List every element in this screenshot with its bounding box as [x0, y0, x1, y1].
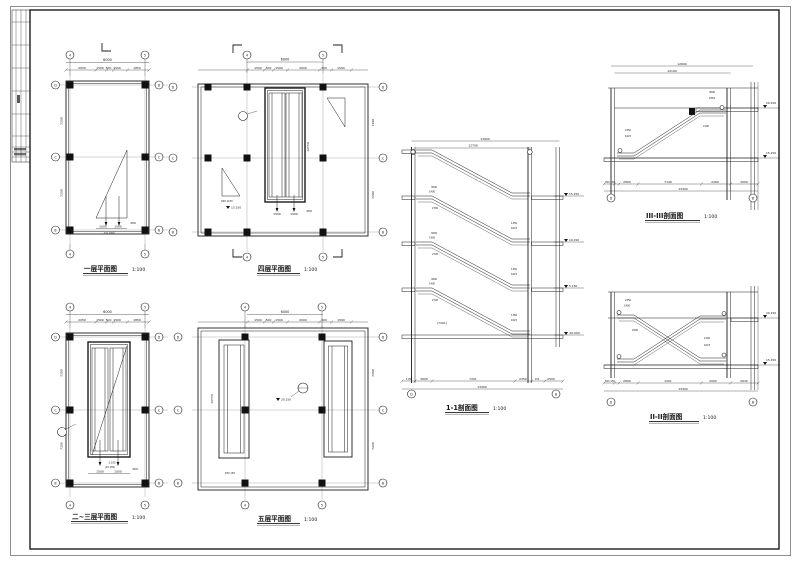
- dim-label: 3600: [709, 91, 716, 94]
- axis-bubble-label: B: [382, 230, 384, 234]
- dim-label: 650 150: [225, 472, 235, 475]
- elevation-label: 20.150: [766, 101, 776, 105]
- dim-label: 7200: [371, 442, 375, 450]
- dim-label: 2700: [432, 299, 439, 302]
- dim-label: 1500: [275, 66, 283, 70]
- axis-bubble-label: 4: [246, 255, 248, 259]
- level-label: 20.150: [281, 398, 291, 402]
- dim-label: 1400: [429, 191, 436, 194]
- dim-label: 1201: [664, 379, 672, 383]
- dim-label: 3000: [431, 278, 438, 281]
- dim-label: 1500: [254, 318, 262, 322]
- corner-stair: [222, 168, 240, 196]
- plan-scale: 1:100: [304, 517, 317, 523]
- axis-bubble-label: 4: [69, 503, 71, 507]
- level-mark-icon: [276, 398, 280, 401]
- section-scale: 1:100: [704, 214, 717, 220]
- dim-label: 1623: [511, 227, 518, 230]
- dim-label: 12550: [210, 394, 214, 404]
- dim-label: 7200: [60, 442, 64, 450]
- axis-bubble-label: 4: [69, 252, 71, 256]
- axis-bubble-label: B: [54, 228, 56, 232]
- axis-bubble-label: 5: [144, 305, 146, 309]
- escalator-band: [286, 93, 302, 197]
- dim-label: 1663: [709, 97, 716, 100]
- plan-scale: 1:100: [304, 267, 317, 273]
- axis-bubble-label: B: [177, 481, 179, 485]
- dim-total: 6000: [103, 310, 112, 314]
- dim-total: 6000: [281, 310, 290, 314]
- section-caption: III-III剖面图: [646, 211, 684, 220]
- plan-scale: 1:100: [132, 267, 145, 273]
- dim-label: 1500: [113, 318, 121, 322]
- plan-caption: 四层平面图: [258, 264, 291, 273]
- dim-label: 2800: [623, 180, 631, 184]
- axis-bubble-label: 4: [246, 53, 248, 57]
- dim-label: 2000: [709, 379, 717, 383]
- down-arrow-icon: [117, 462, 120, 466]
- plan-caption: 五层平面图: [258, 514, 291, 523]
- sheet-border: [11, 7, 791, 556]
- dim-total: 12900: [677, 62, 687, 66]
- drawing-sheet: 1500 1500 300 ±0.000 6000 2050 1500 500 …: [0, 0, 800, 565]
- dim-label: 1623: [704, 344, 711, 347]
- dim-label: 1500: [96, 66, 104, 70]
- axis-bubble-label: B: [752, 400, 754, 404]
- section-1-1: 15.150 10.150 5.150 ±0.000 3000 1400 270…: [401, 137, 585, 414]
- dim-label: 2260: [711, 180, 719, 184]
- dim-label: 1500: [337, 66, 345, 70]
- dim-label: 2630: [740, 379, 748, 383]
- dim-label: 1350: [511, 268, 518, 271]
- section-cut-mark: [333, 45, 342, 53]
- section-2-2: 20.150 15.150 2350 1400 2500 2100 1623 5…: [603, 286, 781, 423]
- dim-label: 300 150: [605, 181, 615, 184]
- dim-label: 7200: [371, 191, 375, 199]
- dim-label: 7200: [60, 117, 64, 125]
- dim-total: 13400: [678, 187, 688, 191]
- elevation-label: 5.150: [569, 284, 577, 288]
- shaft-diagonal: [92, 346, 127, 455]
- detail-bubble: [58, 428, 67, 437]
- dim-label: 1500: [114, 225, 122, 229]
- dim-label: 2700: [432, 207, 439, 210]
- section-scale: 1:100: [493, 406, 506, 412]
- dim-label: 7140: [664, 180, 672, 184]
- axis-bubble-label: B: [382, 481, 384, 485]
- section-cut-mark: [333, 249, 342, 257]
- dim-label: 2000: [299, 318, 307, 322]
- dim-label: 300: [132, 467, 138, 471]
- section-cut-mark: [102, 43, 111, 51]
- dim-label: 500: [106, 318, 112, 322]
- escalator-flight: [617, 106, 726, 160]
- plan-fourth-floor: 15.150 6000 1500 500 1500 2000 300 1500 …: [169, 45, 387, 275]
- section-cut-mark: [233, 249, 242, 257]
- elevation-label: 15.150: [766, 358, 776, 362]
- dim-label: 1500: [113, 66, 121, 70]
- dim-label: 7200: [60, 189, 64, 197]
- elevation-label: 15.150: [569, 192, 579, 196]
- dim-label: 1500: [337, 318, 345, 322]
- escalator-stair-hatch: [96, 150, 127, 218]
- section-3-3: 20.150 15.150 2350 1623 3600 1663 2100 3…: [603, 62, 781, 222]
- dim-label: 2350: [519, 377, 527, 381]
- plan-second-third-floor: 5.150 (10.150) 1500 1500 300 6000 2050 1…: [52, 303, 169, 523]
- title-block: [12, 10, 30, 162]
- dim-label: (7201): [437, 321, 447, 325]
- elevation-label: ±0.000: [569, 331, 580, 335]
- axis-bubble-label: B: [752, 196, 754, 200]
- dim-label: 1400: [429, 283, 436, 286]
- elevation-label: 10.150: [569, 238, 579, 242]
- level-label: ±0.000: [103, 231, 114, 235]
- plan-scale: 1:100: [132, 515, 145, 521]
- dim-label: 1350: [511, 314, 518, 317]
- dim-total: 6000: [281, 58, 290, 62]
- axis-bubble-label: 5: [144, 53, 146, 57]
- dim-label: 1500: [96, 469, 104, 473]
- down-arrow-icon: [99, 462, 102, 466]
- level-label: 15.150: [231, 206, 241, 210]
- dim-label: 2100: [704, 337, 711, 340]
- axis-bubble-label: 5: [321, 305, 323, 309]
- plan-caption: 二~三层平面图: [72, 512, 117, 521]
- dim-label: 2050: [78, 318, 86, 322]
- dim-total: 13400: [477, 385, 487, 389]
- dim-label: 2500: [547, 377, 555, 381]
- axis-bubble-label: B: [172, 230, 174, 234]
- axis-bubble-label: 4: [244, 305, 246, 309]
- dim-total: 6000: [103, 58, 112, 62]
- axis-bubble-label: B: [54, 481, 56, 485]
- dim-label: 7201: [469, 377, 477, 381]
- plan-fifth-floor: 20.150 6000 1500 500 1500 2000 300 1500 …: [174, 303, 387, 525]
- axis-bubble-label: 4: [69, 305, 71, 309]
- dim-total: 13900: [480, 137, 490, 141]
- axis-bubble-label: 4: [69, 53, 71, 57]
- dim-label: 300: [306, 209, 312, 213]
- dim-label: 1500: [99, 225, 107, 229]
- escalator-band: [110, 348, 126, 451]
- dim-label: 500: [266, 66, 272, 70]
- level-mark-icon: [226, 206, 230, 209]
- dim-label: 1850: [133, 318, 141, 322]
- dim-label: 1500: [273, 212, 281, 216]
- dim-label: 2350: [625, 299, 632, 302]
- plan-first-floor: 1500 1500 300 ±0.000 6000 2050 1500 500 …: [52, 43, 169, 275]
- escalator-band: [224, 345, 244, 453]
- dim-label: 12190: [667, 69, 677, 73]
- dim-label: 2050: [78, 66, 86, 70]
- section-cut-mark: [233, 45, 242, 53]
- level-label: 5.150: [109, 462, 116, 465]
- axis-bubble-label: B: [555, 392, 557, 396]
- dim-label: 12550: [306, 142, 310, 152]
- dim-label: 1500: [254, 66, 262, 70]
- dim-label: 1400: [429, 237, 436, 240]
- axis-bubble-label: 4: [244, 503, 246, 507]
- dim-label: 1500: [275, 318, 283, 322]
- axis-bubble-label: 5: [144, 503, 146, 507]
- axis-bubble-label: 5: [321, 503, 323, 507]
- dim-label: 2350: [625, 129, 632, 132]
- section-caption: 1-1剖面图: [446, 403, 478, 412]
- axis-bubble-label: 5: [144, 252, 146, 256]
- section-scale: 1:100: [703, 415, 716, 421]
- dim-label: 1500: [96, 318, 104, 322]
- escalator-flight: [617, 316, 726, 365]
- dim-label: 500: [266, 318, 272, 322]
- dim-label: 3000: [431, 232, 438, 235]
- elevation-label: 15.150: [766, 151, 776, 155]
- axis-bubble-label: 5: [322, 255, 324, 259]
- dim-label: 500 150: [605, 380, 615, 383]
- dim-total: 13400: [678, 387, 688, 391]
- elevation-label: 20.150: [766, 311, 776, 315]
- dim-label: 1623: [511, 319, 518, 322]
- axis-bubble-label: 5: [322, 53, 324, 57]
- dim-label: 1623: [511, 273, 518, 276]
- plan-caption: 一层平面图: [84, 264, 117, 273]
- dim-label: 3000: [740, 180, 748, 184]
- escalator-band: [269, 93, 285, 197]
- corner-stair: [327, 98, 345, 127]
- dim-label: 7200: [371, 369, 375, 377]
- dim-label: 2700: [432, 253, 439, 256]
- dim-label: 1500: [290, 212, 298, 216]
- cad-canvas: 1500 1500 300 ±0.000 6000 2050 1500 500 …: [0, 0, 800, 565]
- dim-label: 500: [106, 66, 112, 70]
- dim-label: 3000: [420, 377, 428, 381]
- dim-label: 12790: [468, 144, 478, 148]
- dim-label: 7200: [371, 119, 375, 127]
- section-caption: II-II剖面图: [650, 412, 683, 421]
- dim-label: 1850: [133, 66, 141, 70]
- dim-label: 1400: [624, 305, 631, 308]
- dim-label: 1500: [114, 469, 122, 473]
- dim-label: 3000: [431, 186, 438, 189]
- dim-label: 2500: [632, 329, 639, 332]
- dim-label: 300: [130, 221, 136, 225]
- axis-bubble-label: B: [158, 481, 160, 485]
- dim-label: 150: [535, 378, 540, 381]
- dim-label: 300: [321, 66, 327, 70]
- dim-label: 2800: [623, 379, 631, 383]
- dim-label: 1350: [511, 222, 518, 225]
- dim-label: 1623: [625, 135, 632, 138]
- dim-label: 2100: [703, 125, 710, 128]
- dim-label: 1150: [406, 378, 413, 381]
- escalator-band: [92, 348, 108, 451]
- escalator-flight: [416, 288, 530, 337]
- dim-label: 7200: [60, 369, 64, 377]
- detail-bubble: [239, 112, 248, 121]
- axis-bubble-label: B: [158, 228, 160, 232]
- dim-label: 600 1150: [221, 200, 233, 203]
- dim-label: 2000: [299, 66, 307, 70]
